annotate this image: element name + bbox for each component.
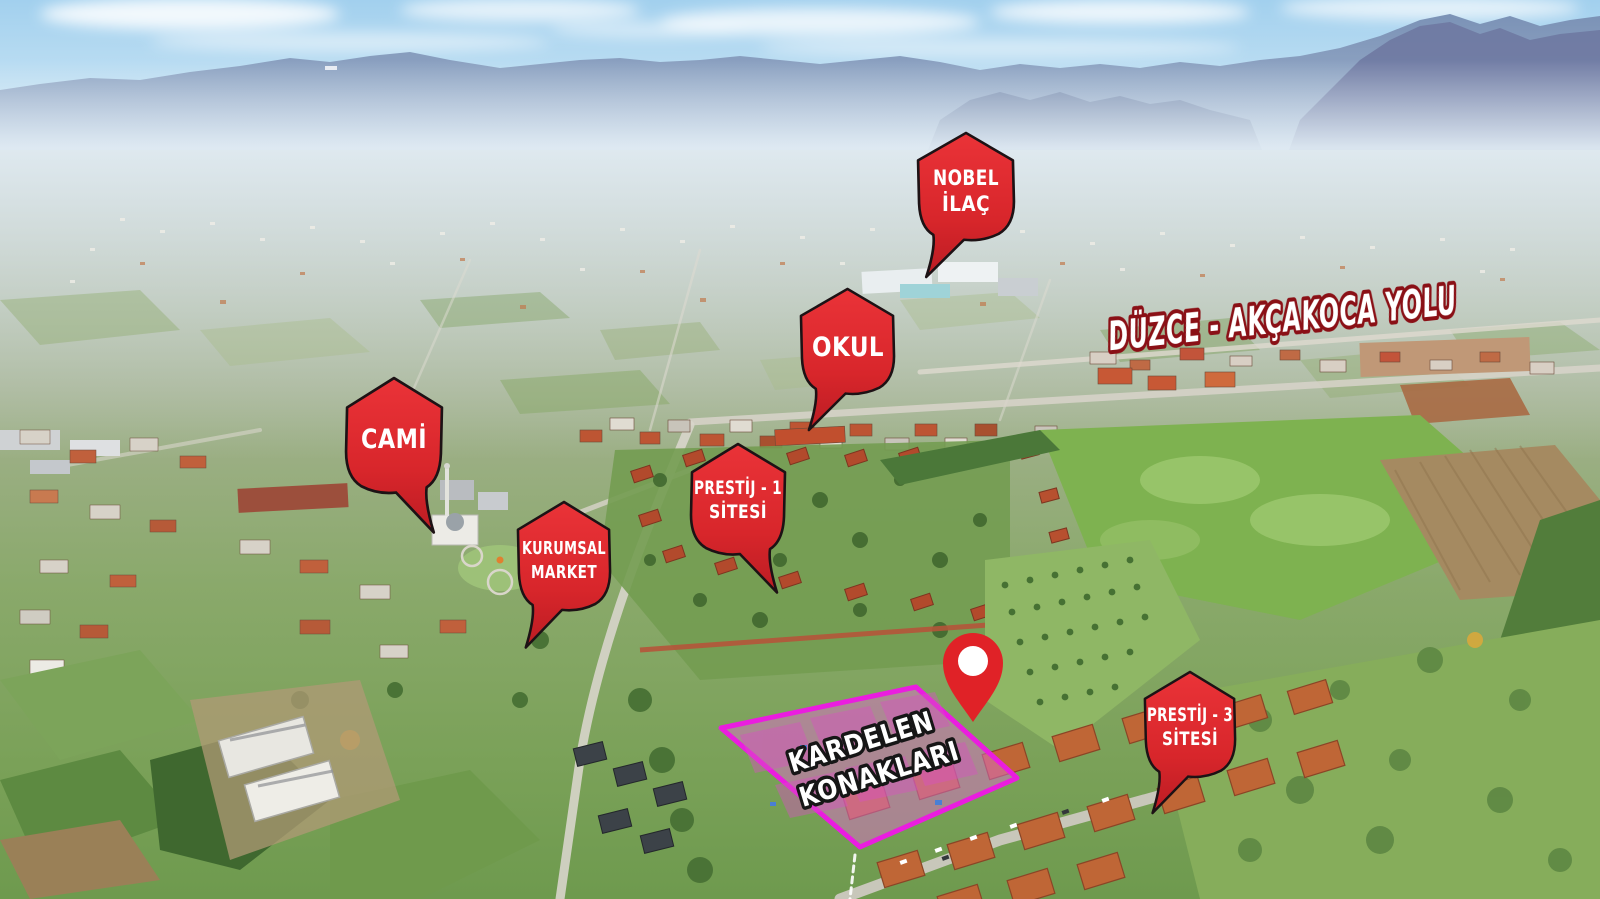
marker-okul-line-1: OKUL [812,332,884,363]
marker-nobel-ilac-line-2: İLAÇ [942,191,990,216]
marker-cami-line-1: CAMİ [361,423,427,455]
haze-layer [0,60,1600,460]
marker-kurumsal-market-line-2: MARKET [531,562,597,583]
marker-nobel-ilac-line-1: NOBEL [933,166,999,190]
aerial-site-photo: KARDELEN KONAKLARI DÜZCE - AKÇAKOCA YOLU… [0,0,1600,899]
marker-prestij-3-line-2: SİTESİ [1162,726,1218,750]
marker-prestij-3-line-1: PRESTİJ - 3 [1147,702,1233,726]
scene-canvas: KARDELEN KONAKLARI DÜZCE - AKÇAKOCA YOLU… [0,0,1600,899]
marker-kurumsal-market-line-1: KURUMSAL [522,538,606,559]
marker-prestij-1-line-1: PRESTİJ - 1 [694,475,782,499]
marker-prestij-1-line-2: SİTESİ [709,499,767,523]
mosque-minaret [445,468,449,516]
